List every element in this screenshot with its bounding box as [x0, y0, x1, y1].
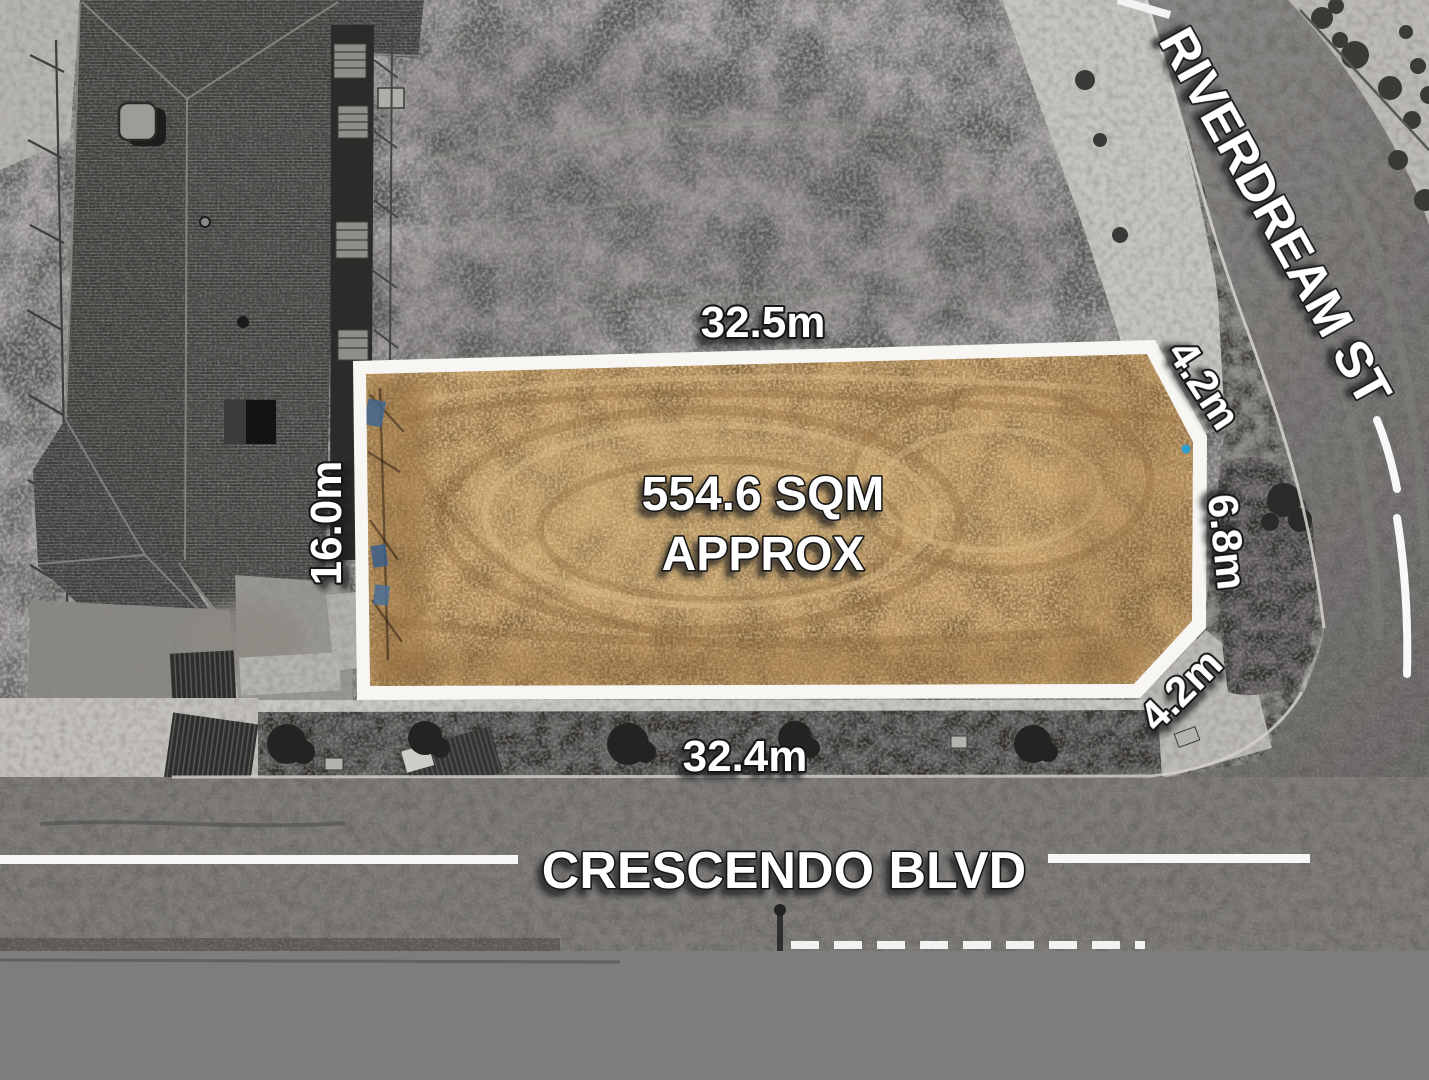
svg-text:APPROX: APPROX: [662, 528, 865, 581]
svg-text:32.5m: 32.5m: [701, 298, 826, 347]
svg-text:16.0m: 16.0m: [302, 461, 351, 586]
svg-text:32.4m: 32.4m: [683, 732, 808, 781]
svg-text:CRESCENDO BLVD: CRESCENDO BLVD: [542, 842, 1026, 900]
svg-text:6.8m: 6.8m: [1199, 492, 1256, 592]
svg-text:554.6 SQM: 554.6 SQM: [642, 468, 885, 521]
